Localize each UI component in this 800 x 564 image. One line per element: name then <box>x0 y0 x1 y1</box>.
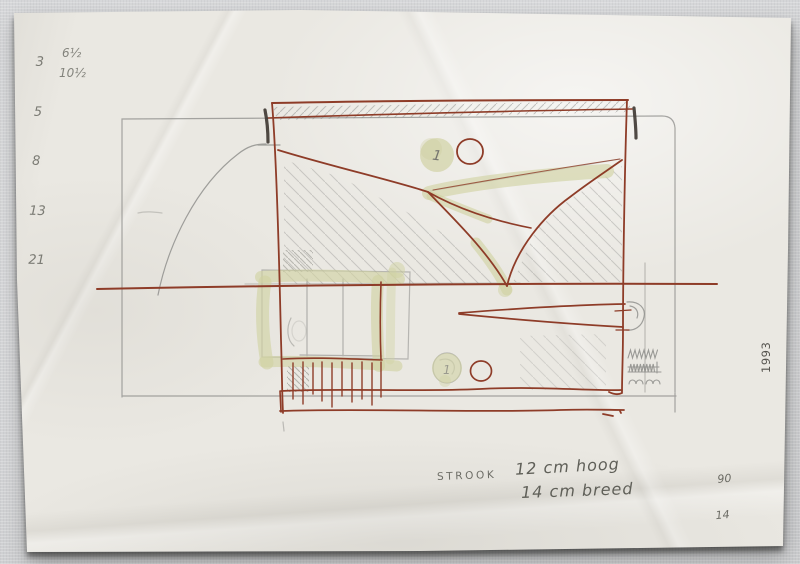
strip-top-edge <box>459 304 625 313</box>
bottom-left-connector <box>280 391 281 412</box>
fraction-note-1: 6½ <box>62 46 81 60</box>
red-circle-bottom <box>471 361 492 381</box>
apex-highlight <box>498 283 512 297</box>
dimension-width-note: 14 cm breed <box>521 479 634 502</box>
heavy-mark-right <box>634 108 636 138</box>
bottom-tick <box>283 422 284 431</box>
blob-mark-bottom: 1 <box>443 363 451 377</box>
small-rect-inner-lines <box>300 279 382 356</box>
bottom-red-dash <box>603 411 621 416</box>
sketch-drawing: 1 1 <box>0 0 800 564</box>
paper-sheet: 1 1 3 5 8 13 21 6½ 10½ STROOK 12 cm hoog… <box>0 0 800 564</box>
strip-tip-pencil <box>626 302 644 330</box>
paper-surface: 1 1 3 5 8 13 21 6½ 10½ STROOK 12 cm hoog… <box>0 0 800 564</box>
number-note: 8 <box>32 154 63 171</box>
photo-stage: 1 1 3 5 8 13 21 6½ 10½ STROOK 12 cm hoog… <box>0 0 800 564</box>
ratio-denominator: 14 <box>715 508 744 522</box>
number-note: 13 <box>29 203 62 220</box>
strip-bottom-edge <box>459 314 623 327</box>
frame-highlight <box>261 262 405 366</box>
strook-label: STROOK <box>437 469 497 483</box>
small-bracket <box>288 318 294 346</box>
small-oval-hint <box>292 321 306 341</box>
hatch-regions <box>273 101 631 392</box>
ratio-numerator: 90 <box>717 472 741 486</box>
number-note: 5 <box>34 104 64 121</box>
faint-dash <box>138 212 162 213</box>
number-note: 21 <box>28 253 61 270</box>
fraction-note-2: 10½ <box>59 66 86 80</box>
red-circle-top <box>457 139 483 164</box>
year-note: 1993 <box>759 333 773 373</box>
fibonacci-number-column: 3 5 8 13 21 <box>28 22 66 303</box>
heavy-mark-left <box>265 110 268 142</box>
bottom-wavy-line2 <box>280 410 624 411</box>
